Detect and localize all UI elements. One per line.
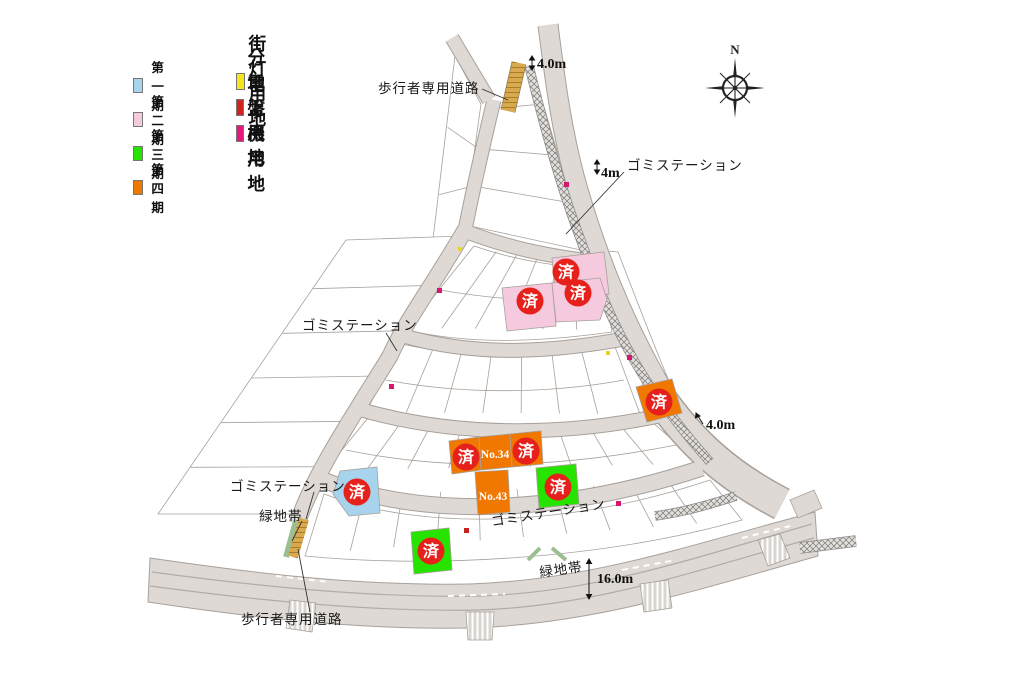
ground-unit-label: 地上機用地 <box>248 71 278 196</box>
sold-badge: 済 <box>453 444 480 471</box>
sold-badge: 済 <box>545 474 572 501</box>
sold-badge: 済 <box>565 280 592 307</box>
svg-text:済: 済 <box>423 542 440 561</box>
lot-number-34: No.34 <box>481 449 510 461</box>
sold-badge: 済 <box>344 479 371 506</box>
distribution-board-marker <box>464 528 469 533</box>
svg-text:済: 済 <box>349 483 366 502</box>
phase4-label: 第四期 <box>151 159 172 216</box>
label-pedestrian-road-top: 歩行者専用道路 <box>378 81 480 96</box>
subdivision-map-page: No.34 No.43 済 済 済 済 済 済 済 済 済 歩行者 <box>0 0 1024 682</box>
lot-number-43: No.43 <box>479 491 508 503</box>
svg-text:済: 済 <box>518 442 535 461</box>
legend-facilities: 街灯用地 分電盤用地 地上機用地 <box>236 68 278 146</box>
svg-text:済: 済 <box>558 263 575 282</box>
phase2-swatch <box>133 112 143 127</box>
svg-text:済: 済 <box>651 393 668 412</box>
svg-text:済: 済 <box>522 292 539 311</box>
sold-badge: 済 <box>418 538 445 565</box>
compass-rose: N <box>705 42 765 118</box>
sold-badge: 済 <box>646 389 673 416</box>
svg-text:済: 済 <box>458 448 475 467</box>
legend-item-phase4: 第四期 <box>133 170 173 204</box>
sold-badge: 済 <box>517 288 544 315</box>
sold-badge: 済 <box>513 438 540 465</box>
streetlight-swatch <box>236 73 245 90</box>
svg-text:済: 済 <box>570 284 587 303</box>
label-garbage-station-left: ゴミステーション <box>230 478 346 494</box>
distribution-board-swatch <box>236 99 244 116</box>
label-width-right: 4.0m <box>706 418 736 433</box>
svg-text:済: 済 <box>550 478 567 497</box>
label-pedestrian-road-bottom: 歩行者専用道路 <box>241 612 343 627</box>
label-green-belt-left: 緑地帯 <box>259 509 303 524</box>
label-garbage-station-mid: ゴミステーション <box>302 317 418 333</box>
legend-item-ground-unit: 地上機用地 <box>236 120 278 146</box>
label-width-bottom: 16.0m <box>597 572 634 587</box>
label-width-top: 4.0m <box>537 57 567 72</box>
phase1-swatch <box>133 78 143 93</box>
label-width-4m: 4m <box>601 166 620 181</box>
compass-north-label: N <box>730 42 740 57</box>
legend-phases: 第一期 第二期 第三期 第四期 <box>133 68 173 204</box>
phase3-swatch <box>133 146 143 161</box>
label-garbage-station-top: ゴミステーション <box>627 157 743 173</box>
ground-unit-swatch <box>236 125 244 142</box>
phase4-swatch <box>133 180 143 195</box>
